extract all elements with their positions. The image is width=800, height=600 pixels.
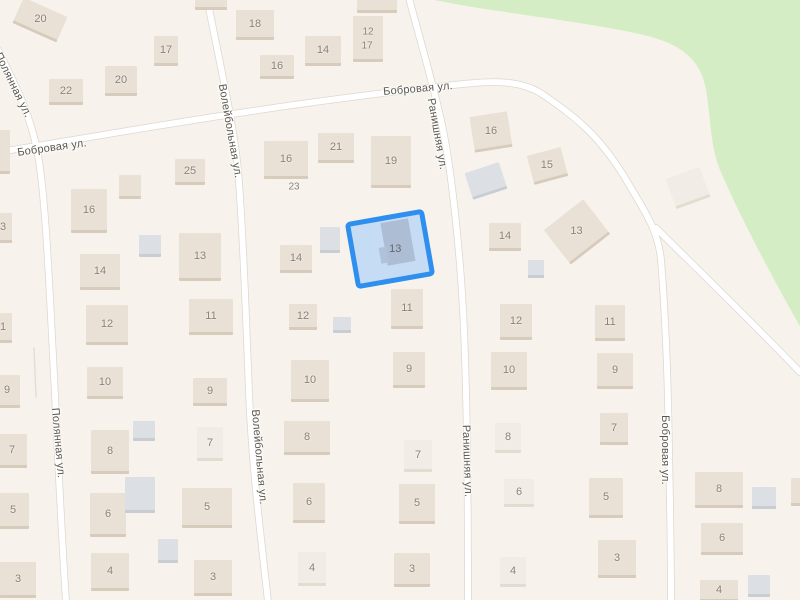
building-3[interactable]: 3 <box>598 540 636 578</box>
house-number: 21 <box>330 141 342 153</box>
building-6[interactable]: 6 <box>293 483 325 523</box>
building[interactable] <box>133 421 155 441</box>
building[interactable] <box>320 227 340 253</box>
building-15[interactable]: 15 <box>527 147 569 185</box>
building-13[interactable]: 13 <box>179 233 221 281</box>
house-number: 16 <box>271 60 283 72</box>
building-8[interactable]: 8 <box>91 430 129 474</box>
house-number: 11 <box>604 316 615 328</box>
house-number: 6 <box>105 508 111 520</box>
building[interactable] <box>752 487 776 509</box>
building-3[interactable]: 3 <box>394 553 430 587</box>
house-number: 12 <box>510 315 522 327</box>
building-21[interactable]: 21 <box>318 133 354 163</box>
building-16[interactable]: 16 <box>264 141 308 179</box>
house-number: 7 <box>207 437 213 449</box>
building-10[interactable]: 10 <box>491 352 527 390</box>
building-4[interactable]: 4 <box>500 557 526 587</box>
house-number: 25 <box>184 165 196 177</box>
house-number: 9 <box>406 363 412 375</box>
house-number: 11 <box>401 302 412 314</box>
house-number: 4 <box>107 565 113 577</box>
building-8[interactable]: 8 <box>495 423 521 453</box>
house-number: 4 <box>510 565 516 577</box>
building-6[interactable]: 6 <box>90 493 126 537</box>
building-8[interactable]: 8 <box>284 421 330 455</box>
building[interactable] <box>528 260 544 278</box>
house-number: 6 <box>306 496 312 508</box>
buildings-layer: 2022201718161431975325161314121110987654… <box>0 0 800 600</box>
house-number: 12 <box>297 310 309 322</box>
building[interactable] <box>465 162 508 200</box>
house-number: 12 <box>101 318 113 330</box>
building-4[interactable]: 4 <box>91 553 129 591</box>
building-14[interactable]: 14 <box>489 223 521 251</box>
building[interactable] <box>139 235 161 257</box>
house-number: 9 <box>207 385 213 397</box>
building-8[interactable]: 8 <box>695 472 743 508</box>
building[interactable] <box>125 477 155 513</box>
building-6[interactable]: 6 <box>504 479 534 507</box>
building-4[interactable]: 4 <box>700 580 738 600</box>
building[interactable] <box>158 539 178 563</box>
house-number: 7 <box>415 449 421 461</box>
house-number: 9 <box>612 364 618 376</box>
house-number: 5 <box>603 491 609 503</box>
building-19[interactable]: 19 <box>371 136 411 188</box>
house-number: 6 <box>719 532 725 544</box>
building-7[interactable]: 7 <box>600 413 628 445</box>
building-7[interactable]: 7 <box>197 427 223 461</box>
house-number: 9 <box>4 384 10 396</box>
building-10[interactable]: 10 <box>87 367 123 399</box>
building-3[interactable]: 3 <box>194 560 232 596</box>
house-number: 17 <box>160 44 172 56</box>
building-12[interactable]: 12 <box>289 304 317 330</box>
building[interactable] <box>333 317 351 333</box>
building-14[interactable]: 14 <box>305 36 341 66</box>
building-5[interactable]: 5 <box>399 484 435 524</box>
building-14[interactable]: 14 <box>80 254 120 290</box>
building-16[interactable]: 16 <box>469 111 512 153</box>
building-9[interactable]: 9 <box>597 353 633 389</box>
house-number: 10 <box>503 364 515 376</box>
house-number: 18 <box>249 18 261 30</box>
building-9[interactable]: 9 <box>0 375 20 408</box>
building-7[interactable]: 7 <box>404 440 432 472</box>
building-14[interactable]: 14 <box>280 245 312 273</box>
house-number: 10 <box>99 376 111 388</box>
building-11[interactable]: 11 <box>595 305 625 341</box>
building-9[interactable]: 9 <box>193 378 227 406</box>
house-number: 5 <box>204 501 210 513</box>
building-5[interactable]: 5 <box>589 478 623 518</box>
house-number: 20 <box>115 74 127 86</box>
building-13[interactable]: 13 <box>544 199 610 264</box>
building[interactable] <box>353 16 383 62</box>
house-number: 19 <box>385 155 397 167</box>
selected-building-number: 13 <box>389 243 401 255</box>
house-number: 4 <box>309 562 315 574</box>
building-20[interactable]: 20 <box>12 0 67 43</box>
house-number: 13 <box>570 225 582 237</box>
building-7[interactable]: 7 <box>0 434 27 468</box>
building-12[interactable]: 12 <box>500 304 532 340</box>
house-number: 8 <box>505 431 511 443</box>
house-number: 5 <box>414 497 420 509</box>
house-number: 8 <box>716 483 722 495</box>
house-number: 15 <box>541 159 553 171</box>
building-22[interactable]: 22 <box>49 79 83 105</box>
building-1[interactable]: 1 <box>0 313 12 343</box>
house-number: 3 <box>409 563 415 575</box>
building-11[interactable]: 11 <box>189 299 233 335</box>
house-number: 14 <box>290 252 302 264</box>
house-number: 14 <box>94 265 106 277</box>
house-number: 16 <box>485 125 497 137</box>
building-4[interactable]: 4 <box>298 552 326 586</box>
house-number: 3 <box>614 552 620 564</box>
building-3[interactable]: 3 <box>0 562 36 598</box>
building[interactable] <box>666 167 711 209</box>
building-12[interactable]: 12 <box>86 305 128 345</box>
building-20[interactable]: 20 <box>105 66 137 96</box>
selected-parcel[interactable]: 13 <box>345 209 436 290</box>
house-number: 5 <box>10 504 16 516</box>
house-number: 4 <box>716 584 722 596</box>
building[interactable] <box>0 130 10 174</box>
building-5[interactable]: 5 <box>182 488 232 528</box>
house-number: 11 <box>205 310 216 322</box>
house-number: 1 <box>0 321 6 333</box>
building[interactable] <box>195 0 227 10</box>
house-number: 3 <box>15 573 21 585</box>
house-number: 7 <box>611 422 617 434</box>
building-16[interactable]: 16 <box>260 55 294 79</box>
building[interactable] <box>748 575 770 597</box>
house-number: 10 <box>304 374 316 386</box>
building-11[interactable]: 11 <box>391 289 423 329</box>
house-number: 8 <box>107 445 113 457</box>
building-6[interactable]: 6 <box>701 523 743 555</box>
house-number: 14 <box>499 230 511 242</box>
house-number: 13 <box>194 250 206 262</box>
house-number: 20 <box>34 13 46 25</box>
building-10[interactable]: 10 <box>291 360 329 402</box>
map-canvas[interactable]: 2022201718161431975325161314121110987654… <box>0 0 800 600</box>
building[interactable] <box>357 0 397 13</box>
building-25[interactable]: 25 <box>175 159 205 185</box>
house-number: 6 <box>516 486 522 498</box>
building-5[interactable]: 5 <box>0 493 29 529</box>
building[interactable] <box>119 175 141 199</box>
building-17[interactable]: 17 <box>154 36 178 66</box>
building-18[interactable]: 18 <box>236 10 274 40</box>
house-number: 16 <box>280 153 292 165</box>
building-9[interactable]: 9 <box>393 352 425 388</box>
house-number: 3 <box>0 221 6 233</box>
building-3[interactable]: 3 <box>0 213 12 243</box>
house-number: 8 <box>304 431 310 443</box>
building-16[interactable]: 16 <box>71 189 107 233</box>
house-number: 3 <box>210 571 216 583</box>
house-number: 7 <box>9 444 15 456</box>
building[interactable] <box>791 478 800 506</box>
house-number: 14 <box>317 44 329 56</box>
house-number: 16 <box>83 204 95 216</box>
house-number: 22 <box>60 85 72 97</box>
